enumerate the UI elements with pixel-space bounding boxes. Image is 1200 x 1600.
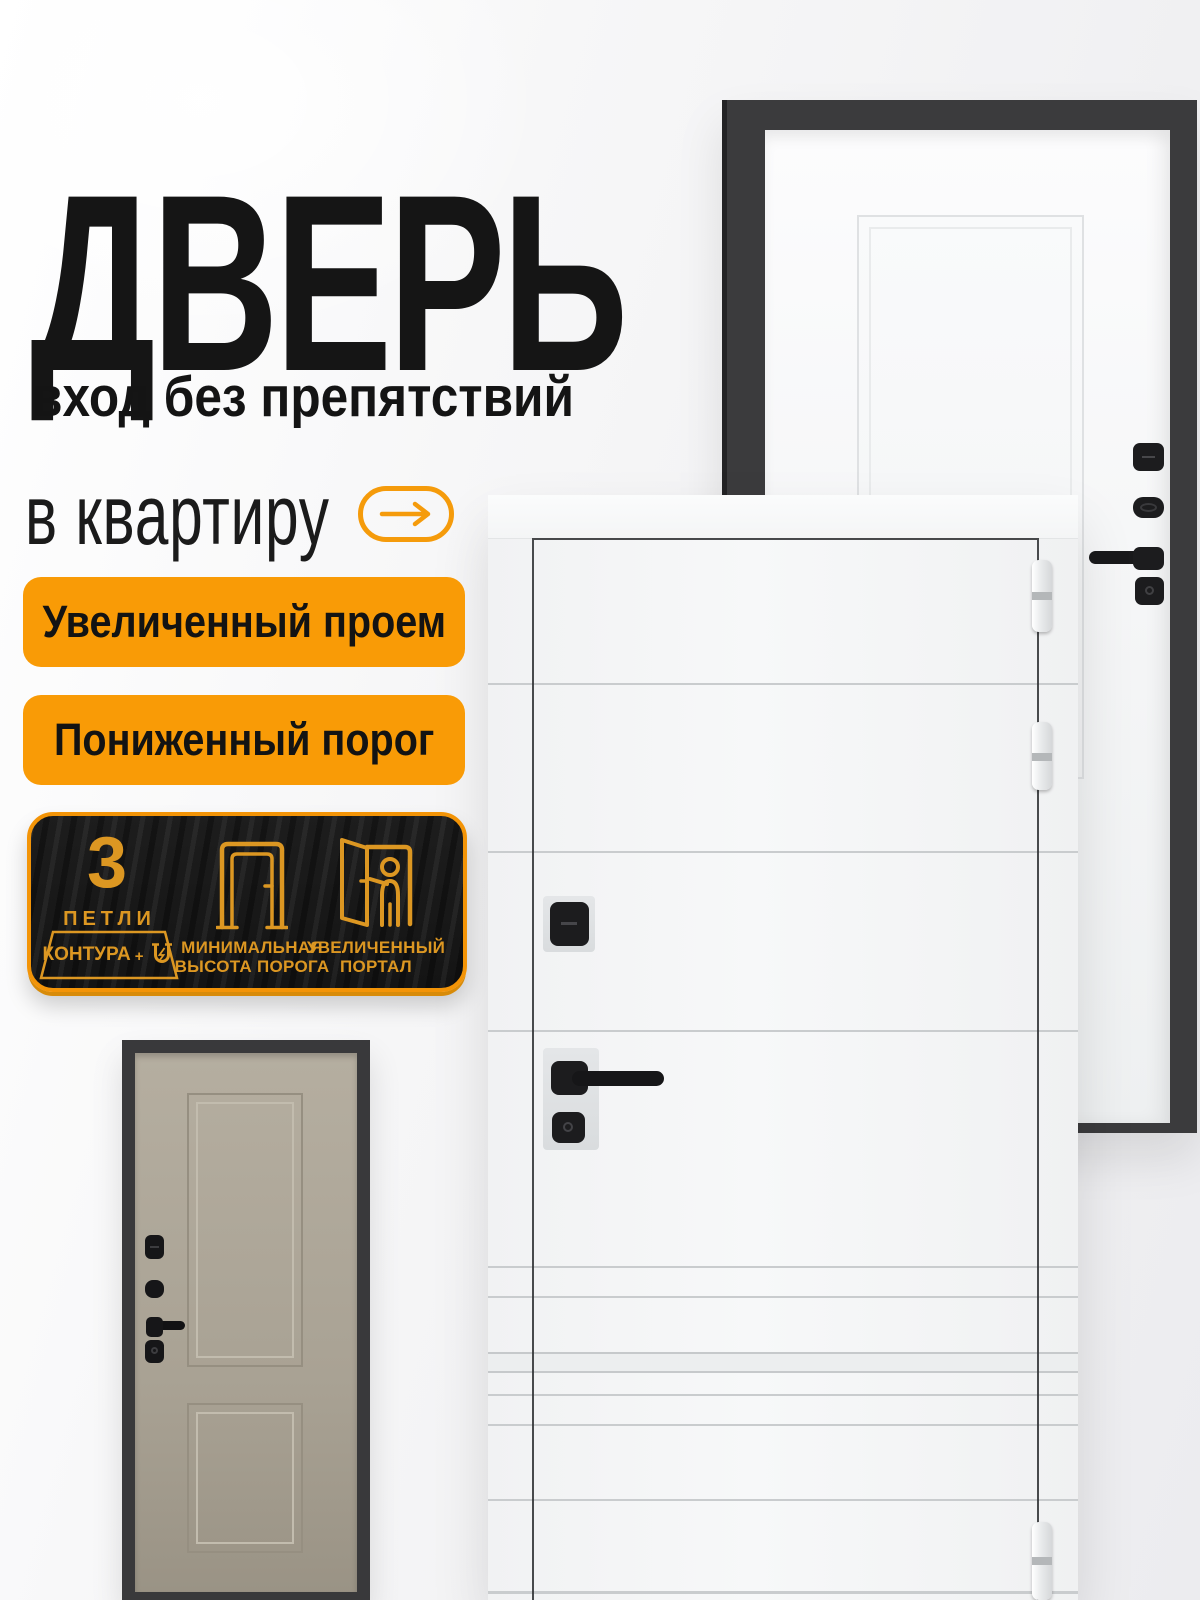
door-lock	[145, 1235, 164, 1259]
door-hinge	[1032, 722, 1052, 790]
portal-caption: УВЕЛИЧЕННЫЙ ПОРТАЛ	[307, 938, 445, 976]
door-hinge	[1032, 560, 1052, 632]
spec-plaque: 3 ПЕТЛИ КОНТУРА + МИНИМАЛЬНАЯ ВЫСОТА П	[27, 812, 467, 992]
door-photo-bottom-left	[122, 1040, 370, 1600]
door-frame-icon	[216, 836, 288, 930]
door-panel	[187, 1403, 303, 1553]
door-lock	[550, 902, 589, 946]
feature-badge-label: Увеличенный проем	[42, 596, 446, 648]
hinges-label: ПЕТЛИ	[31, 908, 183, 931]
door-keyhole	[1135, 577, 1164, 605]
portal-caption-line1: УВЕЛИЧЕННЫЙ	[307, 938, 445, 957]
plus-sign: +	[135, 948, 144, 965]
door-cylinder	[145, 1280, 164, 1298]
door-handle-rosette	[146, 1317, 163, 1337]
hero-subtitle: вход без препятствий	[32, 364, 574, 430]
door-panel	[187, 1093, 303, 1367]
door-lock	[1133, 443, 1164, 471]
arrow-right-icon	[377, 498, 435, 530]
door-hinge	[1032, 1522, 1052, 1600]
door-handle-rosette	[1133, 547, 1164, 570]
door-panel-inner	[196, 1412, 294, 1544]
portal-caption-line2: ПОРТАЛ	[307, 957, 445, 976]
contour-label: КОНТУРА	[42, 944, 130, 966]
door-photo-center	[488, 495, 1078, 1600]
magnet-icon	[148, 940, 176, 970]
door-handle-lever	[572, 1071, 664, 1086]
feature-badge-opening: Увеличенный проем	[23, 577, 465, 667]
door-panel-inner	[196, 1102, 294, 1358]
door-leaf-gap-line	[532, 538, 1039, 1600]
contour-row: КОНТУРА +	[39, 930, 179, 980]
hero-tagline: в квартиру	[25, 467, 330, 564]
hinges-count: 3	[31, 826, 183, 902]
feature-badge-label: Пониженный порог	[54, 714, 434, 766]
door-keyhole	[552, 1112, 585, 1143]
feature-badge-threshold: Пониженный порог	[23, 695, 465, 785]
arrow-pill	[358, 486, 454, 542]
product-banner: ДВЕРЬ вход без препятствий в квартиру Ув…	[0, 0, 1200, 1600]
door-cylinder	[1133, 497, 1164, 518]
open-door-icon	[337, 836, 415, 930]
door-keyhole	[145, 1340, 164, 1363]
